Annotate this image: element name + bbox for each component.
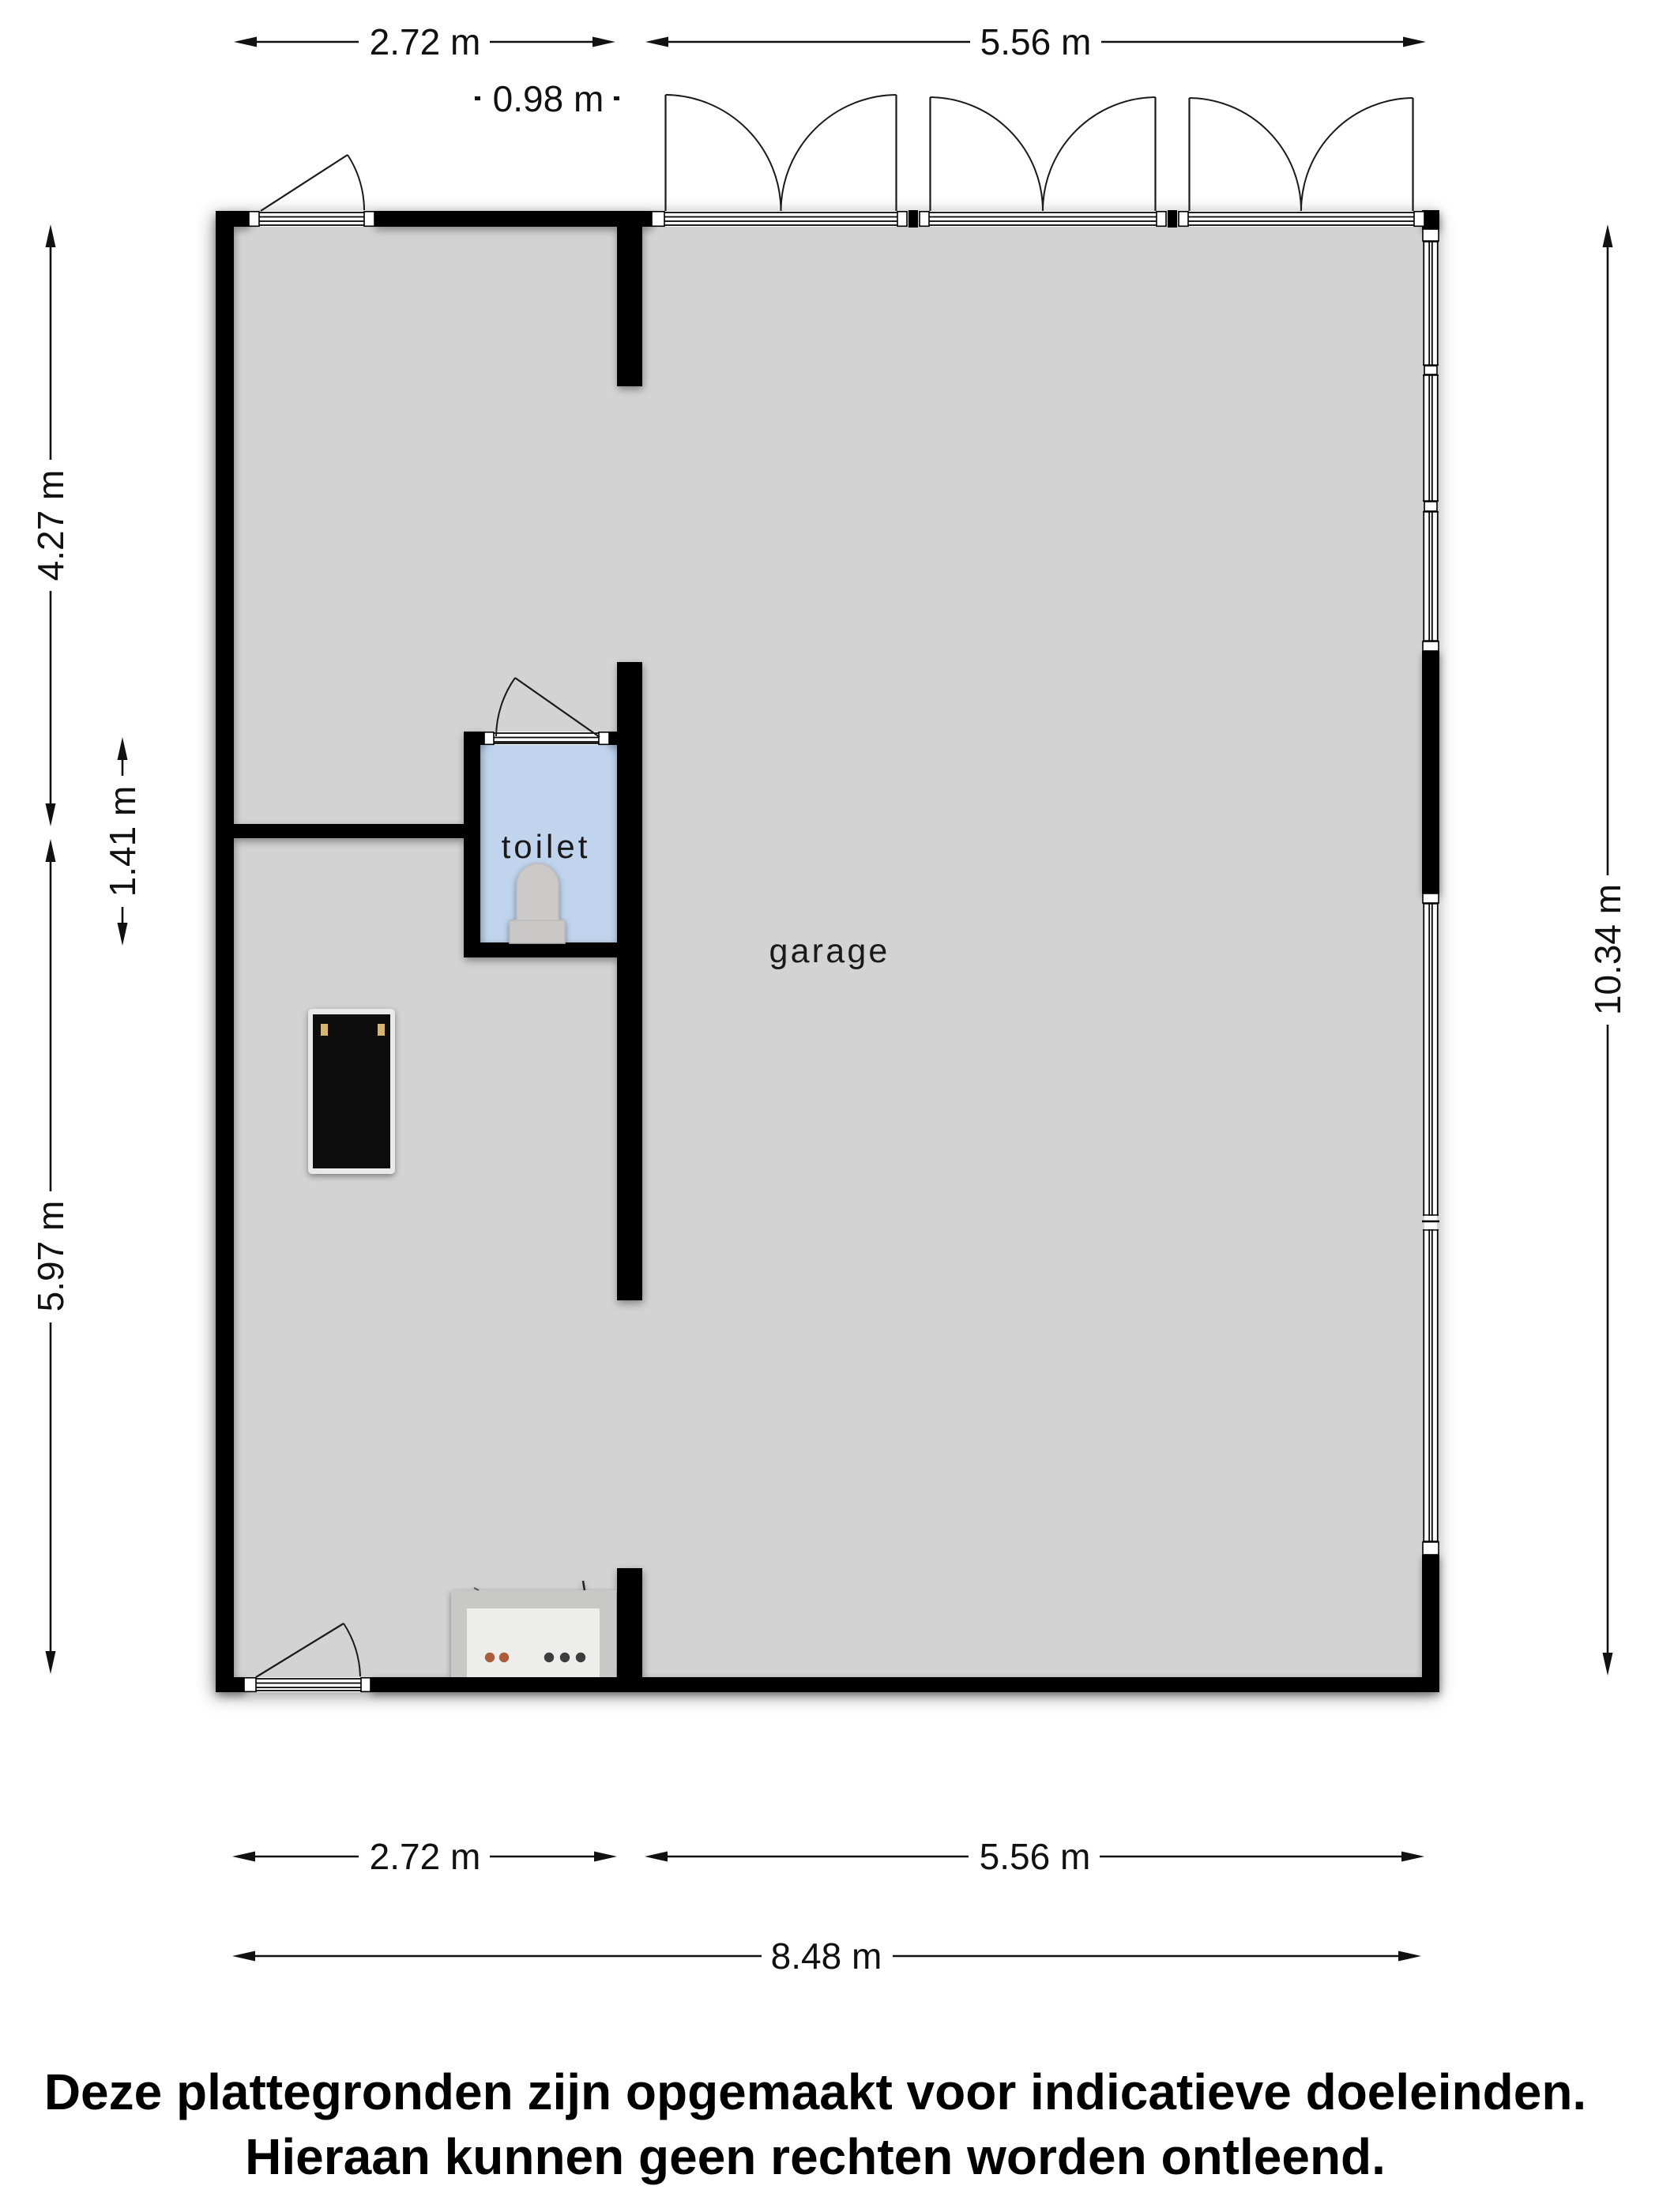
svg-text:toilet: toilet — [502, 828, 591, 865]
svg-text:2.72 m: 2.72 m — [370, 21, 481, 62]
svg-text:5.56 m: 5.56 m — [980, 21, 1092, 62]
svg-text:5.97 m: 5.97 m — [30, 1201, 71, 1312]
svg-text:10.34 m: 10.34 m — [1587, 884, 1628, 1015]
svg-text:Deze plattegronden zijn opgema: Deze plattegronden zijn opgemaakt voor i… — [44, 2063, 1586, 2120]
svg-text:5.56 m: 5.56 m — [980, 1836, 1091, 1877]
svg-text:4.27 m: 4.27 m — [30, 470, 71, 581]
svg-text:Hieraan kunnen geen rechten wo: Hieraan kunnen geen rechten worden ontle… — [245, 2128, 1386, 2185]
svg-text:1.41 m: 1.41 m — [102, 786, 143, 897]
svg-text:0.98 m: 0.98 m — [493, 78, 604, 119]
svg-text:8.48 m: 8.48 m — [771, 1935, 882, 1977]
svg-text:garage: garage — [769, 932, 890, 970]
svg-text:2.72 m: 2.72 m — [370, 1836, 481, 1877]
